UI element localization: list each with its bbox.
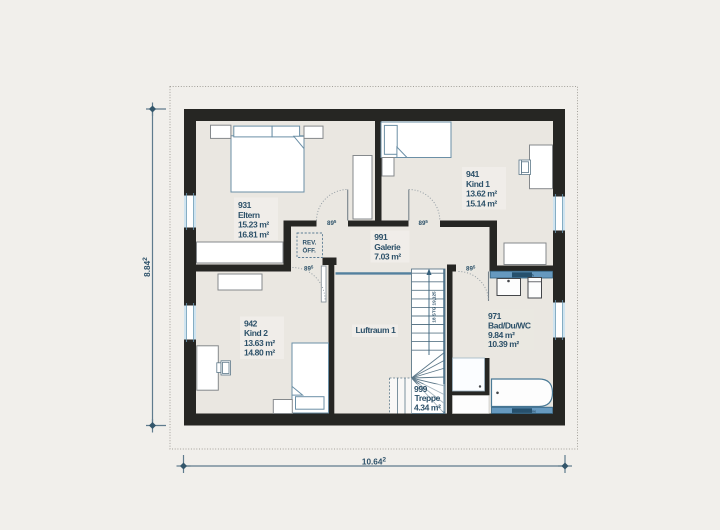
svg-text:Kind 2: Kind 2 (244, 328, 268, 338)
svg-text:15.14 m²: 15.14 m² (466, 198, 497, 208)
svg-text:Waschtisch: Waschtisch (514, 274, 534, 278)
svg-text:Galerie: Galerie (374, 242, 401, 252)
svg-text:991: 991 (374, 232, 388, 242)
svg-text:931: 931 (238, 200, 252, 210)
svg-text:Eltern: Eltern (238, 210, 260, 220)
svg-text:4.34 m²: 4.34 m² (414, 402, 441, 412)
svg-text:14.80 m²: 14.80 m² (244, 348, 275, 358)
svg-text:REV.: REV. (303, 240, 317, 247)
svg-text:7.03 m²: 7.03 m² (374, 252, 401, 262)
svg-text:Duschwanne: Duschwanne (514, 409, 536, 413)
svg-text:13.63 m²: 13.63 m² (244, 338, 275, 348)
svg-text:941: 941 (466, 169, 480, 179)
svg-text:15.23 m²: 15.23 m² (238, 220, 269, 230)
svg-text:13.62 m²: 13.62 m² (466, 189, 497, 199)
svg-text:ÖFF.: ÖFF. (303, 248, 317, 255)
svg-text:942: 942 (244, 318, 258, 328)
svg-text:16.81 m²: 16.81 m² (238, 229, 269, 239)
svg-text:Kind 1: Kind 1 (466, 179, 490, 189)
svg-text:Luftraum 1: Luftraum 1 (356, 325, 397, 335)
svg-text:10.39 m²: 10.39 m² (488, 339, 519, 349)
svg-text:18 STG 19,125: 18 STG 19,125 (432, 291, 437, 323)
svg-text:971: 971 (488, 311, 502, 321)
